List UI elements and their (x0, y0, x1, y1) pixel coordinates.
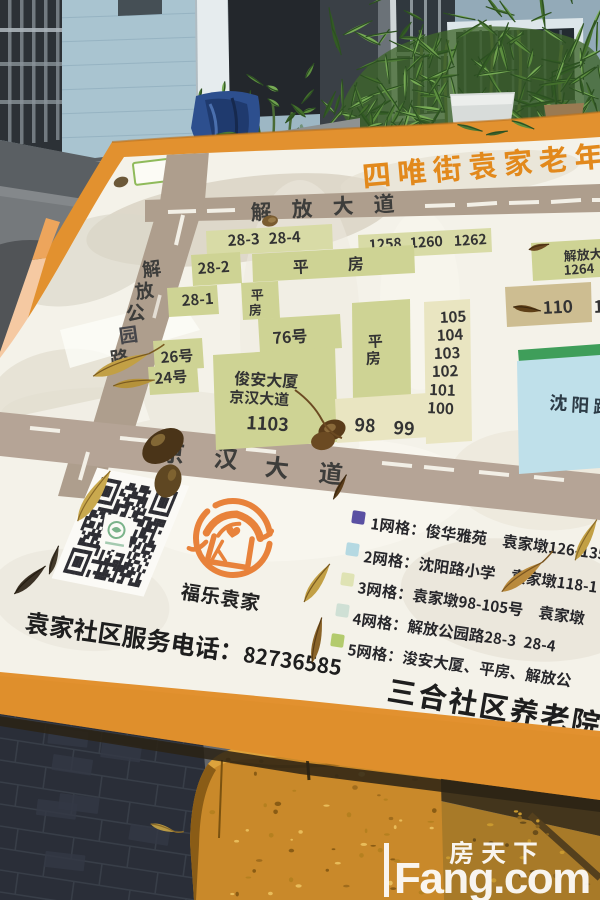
svg-text:Fang.com: Fang.com (394, 854, 590, 900)
